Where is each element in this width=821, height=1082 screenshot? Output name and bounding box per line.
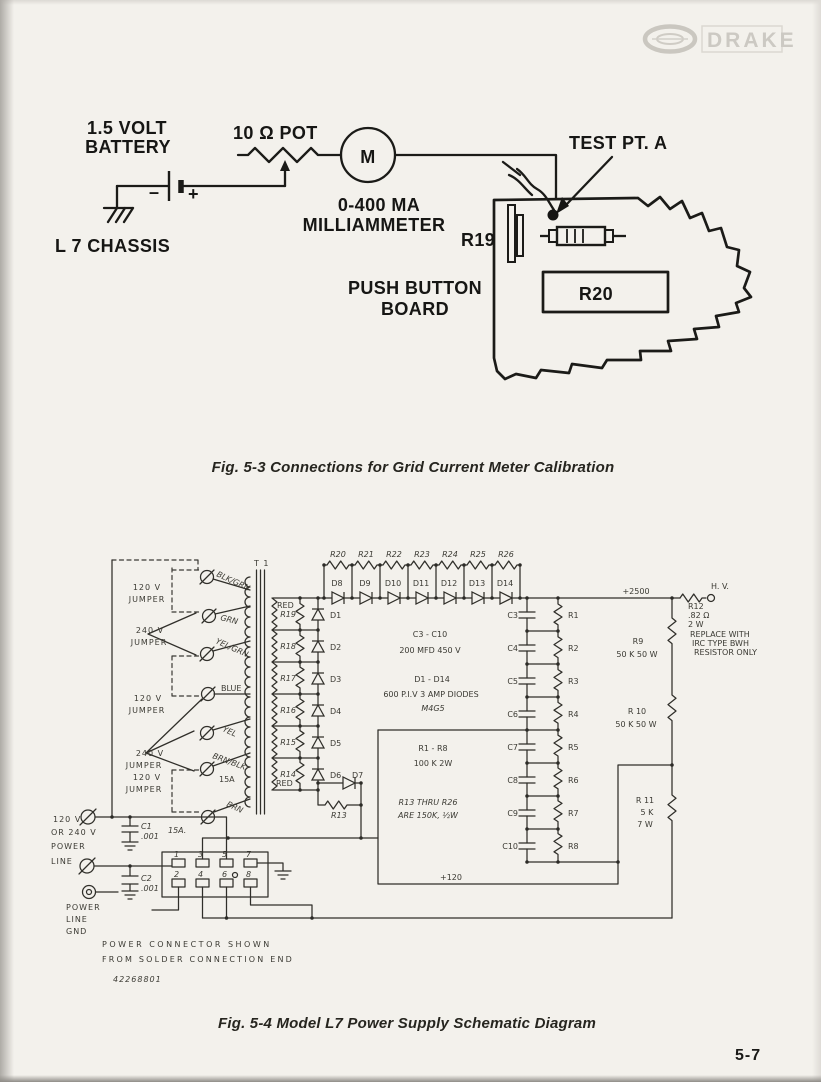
power-line-labels: 120 V OR 240 V POWER LINE POWER LINE GND…	[51, 815, 159, 936]
d14: D14	[497, 579, 513, 588]
pin-7: 7	[246, 850, 252, 859]
meter-letter: M	[360, 147, 375, 167]
gnd-l2: LINE	[66, 915, 88, 924]
r19-component	[508, 205, 523, 262]
r9-name: R9	[633, 637, 644, 646]
fig53-wires	[104, 148, 556, 222]
pin-3: 3	[198, 850, 203, 859]
wire-yel: YEL	[221, 725, 238, 739]
r26t: R26	[498, 550, 514, 559]
pin-8: 8	[246, 870, 251, 879]
power-l3: POWER	[51, 842, 86, 851]
c3: C3	[507, 611, 518, 620]
note-bleeder-2: 100 K 2W	[414, 759, 453, 768]
r4: R4	[568, 710, 579, 719]
jumper-5-label: JUMPER	[125, 785, 163, 794]
axial-resistor	[540, 227, 626, 245]
jumper-labels: 120 V JUMPER 240 V JUMPER 120 V JUMPER 2…	[125, 583, 168, 794]
red-top-label: RED	[277, 601, 294, 610]
pot-wiper-arrow	[280, 160, 290, 171]
r10-name: R 10	[628, 707, 646, 716]
r6: R6	[568, 776, 579, 785]
push-button-board-outline	[494, 197, 751, 379]
fuse-label: 15A	[219, 775, 235, 784]
fig53-caption: Fig. 5-3 Connections for Grid Current Me…	[212, 459, 615, 476]
d9: D9	[359, 579, 370, 588]
r3: R3	[568, 677, 579, 686]
r12-4: REPLACE WITH	[690, 630, 750, 639]
connector-note-1: POWER CONNECTOR SHOWN	[102, 940, 272, 949]
part-number: 42268801	[113, 975, 162, 984]
power-l4: LINE	[51, 857, 73, 866]
board-label-1: PUSH BUTTON	[348, 278, 482, 298]
r25t: R25	[470, 550, 486, 559]
test-point-label: TEST PT. A	[569, 133, 667, 153]
jumper-terminals	[200, 570, 216, 824]
r11-v2: 7 W	[637, 820, 653, 829]
transformer-labels: T 1 RED RED R19 R18 R17 R16 R15 R14	[253, 559, 297, 788]
sec-r15: R15	[280, 738, 296, 747]
c2-label: C2	[141, 874, 152, 883]
test-point-dot	[548, 210, 559, 221]
fig53-diagram: 1.5 VOLT BATTERY 10 Ω POT M 0-400 MA MIL…	[55, 118, 751, 476]
r13-label: R13	[331, 811, 347, 820]
jumper-1-label: JUMPER	[128, 595, 166, 604]
fuse2-label: 15A.	[168, 826, 186, 835]
left-diode-labels: D1 D2 D3 D4 D5 D6 D7 R13	[330, 611, 363, 820]
c2-value: .001	[141, 884, 159, 893]
jumper-2-v: 240 V	[136, 626, 164, 635]
d13: D13	[469, 579, 485, 588]
c7: C7	[507, 743, 518, 752]
d5: D5	[330, 739, 341, 748]
d4: D4	[330, 707, 341, 716]
drake-logo: DRAKE	[645, 26, 797, 52]
jumper-4-label: JUMPER	[125, 761, 163, 770]
note-diodes-1: D1 - D14	[414, 675, 450, 684]
note-bleeder-1: R1 - R8	[418, 744, 447, 753]
right-side-labels: +2500 H. V. R12 .82 Ω 2 W REPLACE WITH I…	[440, 582, 757, 882]
wire-blue: BLUE	[221, 684, 241, 693]
r19-label: R19	[461, 230, 495, 250]
r10-value: 50 K 50 W	[615, 720, 656, 729]
meter-name-label: MILLIAMMETER	[303, 215, 446, 235]
sec-r18: R18	[280, 642, 296, 651]
jumper-4-v: 240 V	[136, 749, 164, 758]
schematic-lines	[94, 560, 706, 918]
c9: C9	[507, 809, 518, 818]
c8: C8	[507, 776, 518, 785]
jumper-2-label: JUMPER	[130, 638, 168, 647]
connector-note-2: FROM SOLDER CONNECTION END	[102, 955, 294, 964]
gnd-l3: GND	[66, 927, 87, 936]
sec-r16: R16	[280, 706, 296, 715]
jumper-1-v: 120 V	[133, 583, 161, 592]
meter-range-label: 0-400 MA	[338, 195, 420, 215]
r9-value: 50 K 50 W	[616, 650, 657, 659]
sec-r14: R14	[280, 770, 296, 779]
d10: D10	[385, 579, 401, 588]
note-caps-2: 200 MFD 450 V	[399, 646, 461, 655]
r1: R1	[568, 611, 579, 620]
schematic-notes: C3 - C10 200 MFD 450 V D1 - D14 600 P.I.…	[383, 630, 478, 820]
power-line-terminals	[79, 809, 96, 899]
test-probe	[503, 162, 554, 210]
pin-2: 2	[174, 870, 179, 879]
red-bottom-label: RED	[276, 779, 293, 788]
jumper-3-label: JUMPER	[128, 706, 166, 715]
page-artwork: DRAKE	[0, 0, 821, 1082]
r7: R7	[568, 809, 579, 818]
c1-label: C1	[141, 822, 152, 831]
pin-5: 5	[222, 850, 227, 859]
battery-symbol	[169, 171, 181, 201]
c6: C6	[507, 710, 518, 719]
hv-label: H. V.	[711, 582, 729, 591]
d3: D3	[330, 675, 341, 684]
r12-5: IRC TYPE BWH	[692, 639, 749, 648]
note-r13-2: ARE 150K, ½W	[397, 811, 459, 820]
sec-r19: R19	[280, 610, 296, 619]
wire-brnblk: BRN/BLK	[211, 751, 248, 772]
cap-bleeder-labels: C3 C4 C5 C6 C7 C8 C9 C10 R1 R2 R3 R4 R5 …	[502, 611, 578, 851]
r12-1: R12	[688, 602, 704, 611]
battery-label-1: 1.5 VOLT	[87, 118, 167, 138]
board-label-2: BOARD	[381, 299, 449, 319]
note-diodes-2: 600 P.I.V 3 AMP DIODES	[383, 690, 478, 699]
pin-4: 4	[198, 870, 203, 879]
sec-r17: R17	[280, 674, 297, 683]
fig54-caption: Fig. 5-4 Model L7 Power Supply Schematic…	[218, 1015, 596, 1032]
c1-value: .001	[141, 832, 159, 841]
c10: C10	[502, 842, 518, 851]
power-l2: OR 240 V	[51, 828, 97, 837]
battery-minus: –	[149, 182, 159, 202]
r5: R5	[568, 743, 579, 752]
connector-labels: 1 3 5 7 2 4 6 8 POWER CONNECTOR SHOWN FR…	[102, 850, 294, 984]
r2: R2	[568, 644, 579, 653]
jumper-3-v: 120 V	[134, 694, 162, 703]
jumper-5-v: 120 V	[133, 773, 161, 782]
t1-label: T 1	[253, 559, 270, 568]
d8: D8	[331, 579, 342, 588]
d7-label: D7	[352, 771, 363, 780]
r20-label: R20	[579, 284, 613, 304]
fig54-schematic: 120 V JUMPER 240 V JUMPER 120 V JUMPER 2…	[51, 550, 757, 1032]
plus2500-label: +2500	[622, 587, 649, 596]
plus120-label: +120	[440, 873, 462, 882]
d2: D2	[330, 643, 341, 652]
manual-page: DRAKE	[0, 0, 821, 1082]
d12: D12	[441, 579, 457, 588]
pin-1: 1	[174, 850, 179, 859]
power-l1: 120 V	[53, 815, 81, 824]
wire-yelgrn: YEL/GRN	[214, 637, 249, 659]
r22t: R22	[386, 550, 402, 559]
r23t: R23	[414, 550, 430, 559]
chassis-label: L 7 CHASSIS	[55, 236, 170, 256]
r24t: R24	[442, 550, 458, 559]
c5: C5	[507, 677, 518, 686]
note-caps-1: C3 - C10	[413, 630, 447, 639]
d1: D1	[330, 611, 341, 620]
pin-6: 6	[222, 870, 227, 879]
page-number: 5-7	[735, 1047, 761, 1064]
r20t: R20	[330, 550, 346, 559]
r11-v1: 5 K	[641, 808, 655, 817]
gnd-l1: POWER	[66, 903, 101, 912]
r21t: R21	[358, 550, 374, 559]
r12-3: 2 W	[688, 620, 704, 629]
hv-terminal	[708, 595, 715, 602]
d11: D11	[413, 579, 429, 588]
pot-label: 10 Ω POT	[233, 123, 318, 143]
r12-6: RESISTOR ONLY	[694, 648, 757, 657]
battery-plus: +	[188, 184, 199, 204]
drake-logo-text: DRAKE	[707, 29, 797, 52]
note-diodes-3: M4G5	[421, 704, 444, 713]
battery-label-2: BATTERY	[85, 137, 171, 157]
wire-grn: GRN	[220, 613, 239, 626]
r11-name: R 11	[636, 796, 654, 805]
r12-2: .82 Ω	[688, 611, 709, 620]
c4: C4	[507, 644, 518, 653]
note-r13-1: R13 THRU R26	[399, 798, 458, 807]
r8: R8	[568, 842, 579, 851]
d6: D6	[330, 771, 341, 780]
